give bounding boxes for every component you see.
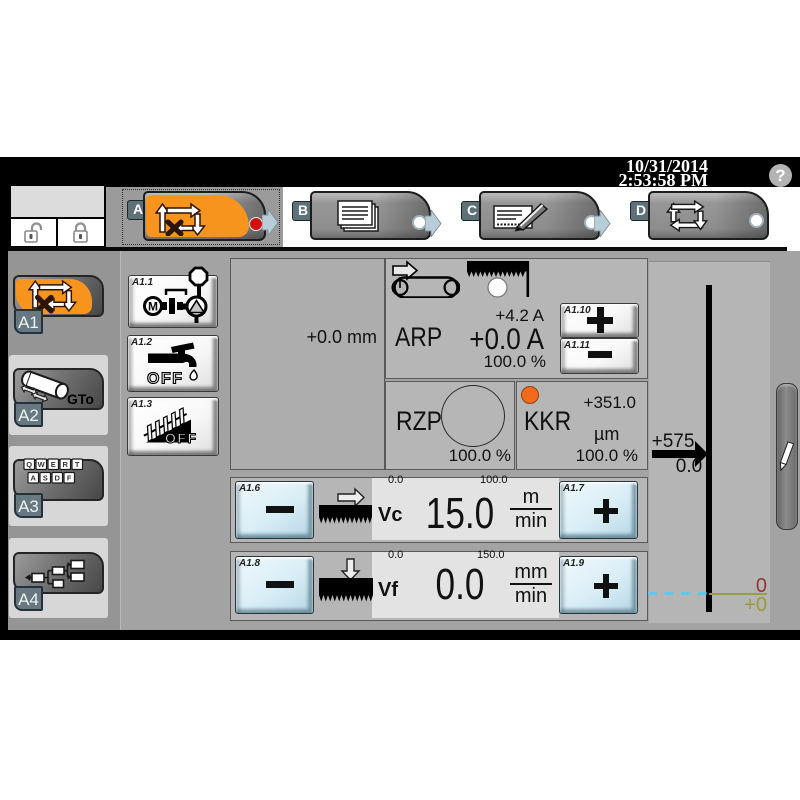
- svg-text:T: T: [75, 460, 80, 469]
- svg-text:W: W: [38, 460, 46, 469]
- svg-text:A: A: [30, 474, 36, 483]
- svg-text:D: D: [54, 474, 60, 483]
- svg-text:S: S: [43, 474, 48, 483]
- svg-text:OFF: OFF: [165, 430, 198, 446]
- svg-text:R: R: [62, 460, 68, 469]
- svg-text:OFF: OFF: [147, 371, 184, 388]
- svg-text:M: M: [148, 300, 158, 314]
- svg-text:GTo: GTo: [67, 391, 94, 407]
- svg-text:Q: Q: [26, 460, 32, 469]
- svg-text:E: E: [51, 460, 56, 469]
- svg-text:F: F: [67, 474, 72, 483]
